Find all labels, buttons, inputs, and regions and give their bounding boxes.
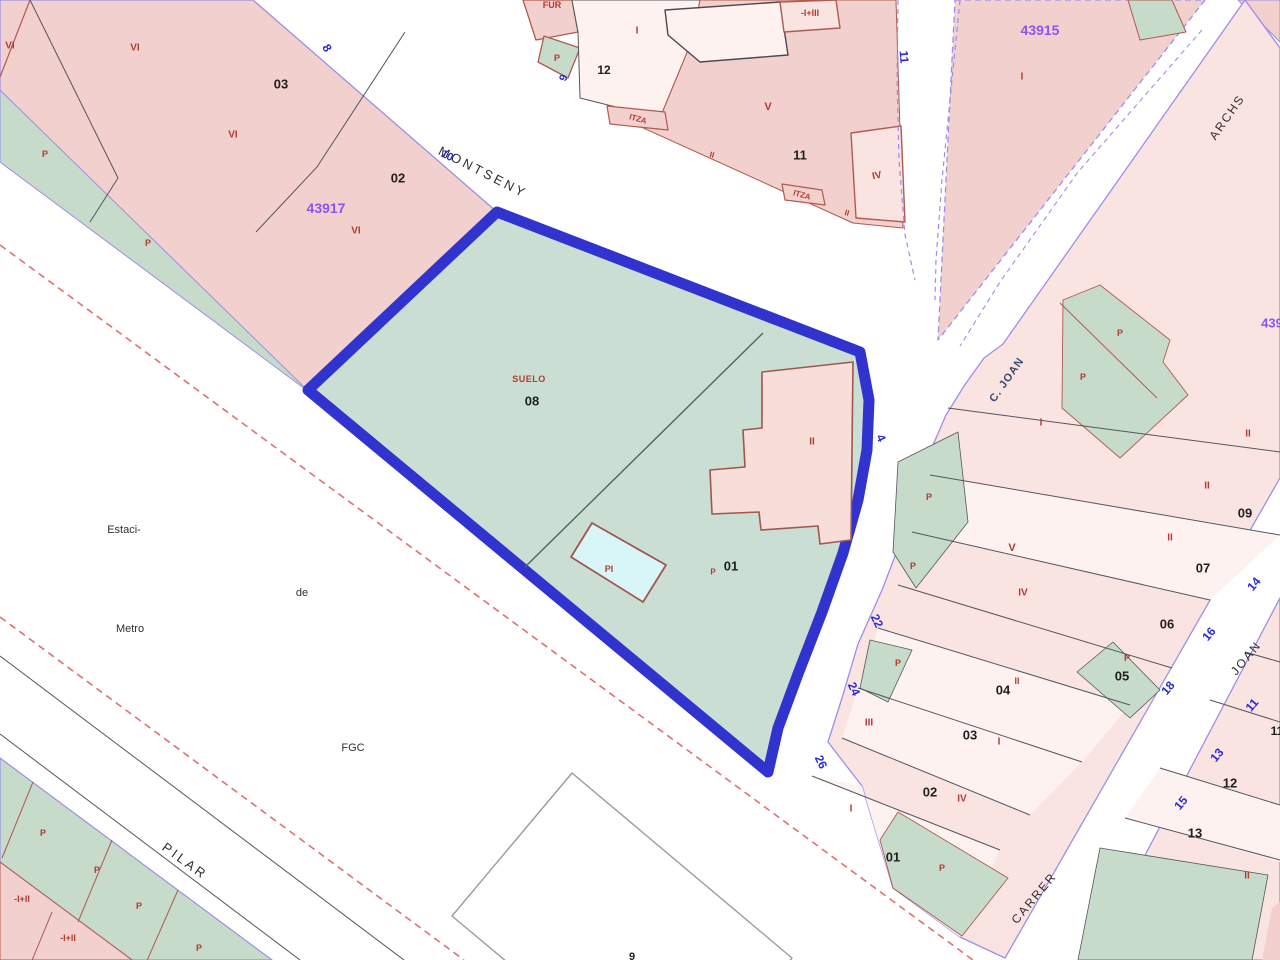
cadastral-map[interactable]: VIVI03VI0243917VIPP8MONTSENY1091211FURPI… [0, 0, 1280, 960]
label-parcel-03: 03 [274, 77, 288, 92]
label-vi-3: VI [351, 226, 361, 237]
label-i-43915: I [1021, 72, 1024, 83]
label-vi-1: VI [130, 43, 140, 54]
label-streetnum-14: 14 [1244, 574, 1264, 593]
label-parcel-05: 05 [1115, 669, 1129, 684]
label-iv-02: IV [957, 794, 967, 805]
label-i-bldg: I [636, 26, 639, 37]
label-pool-pi: PI [605, 564, 614, 574]
label-parcel-12: 12 [597, 63, 611, 77]
label-streetnum-11: 11 [896, 50, 911, 64]
label-i-ii-1: -I+II [14, 894, 30, 904]
label-p-7: P [1080, 372, 1086, 382]
label-fgc: FGC [341, 742, 364, 754]
label-parcel-02: 02 [391, 171, 405, 186]
label-parcel-06: 06 [1160, 617, 1174, 632]
label-v-rb: V [1008, 542, 1016, 554]
label-i-ii-2: -I+II [60, 933, 76, 943]
label-ii-fb: II [1244, 871, 1250, 882]
label-fur: FUR [543, 0, 562, 10]
label-parcel-02-rb: 02 [923, 785, 937, 800]
building-outline-plot[interactable] [452, 773, 792, 960]
label-ii-04: II [1014, 676, 1019, 686]
label-p-3: P [554, 53, 560, 63]
label-ii-rb-3: II [1167, 533, 1173, 544]
label-streetnum-26: 26 [812, 753, 830, 771]
label-streetnum-16: 16 [1199, 624, 1219, 643]
label-streetnum-4: 4 [873, 432, 889, 444]
label-estacio: Estaci- [107, 524, 141, 536]
label-i-rb: I [1040, 418, 1043, 429]
label-parcel-04: 04 [996, 683, 1011, 698]
label-vi-edge: VI [5, 41, 15, 52]
label-p-10: P [939, 863, 945, 873]
label-p-8: P [1117, 328, 1123, 338]
label-p-5: P [910, 561, 916, 571]
label-parcel-01-center: 01 [724, 559, 738, 574]
label-ii-rb-2: II [1204, 481, 1210, 492]
label-block-43917: 43917 [307, 200, 346, 216]
label-ii-building: II [809, 437, 815, 448]
label-i-rb-2: I [850, 804, 853, 815]
label-metro: Metro [116, 623, 144, 635]
label-p-13: P [136, 901, 142, 911]
label-p-14: P [196, 943, 202, 953]
label-parcel-09: 09 [1238, 506, 1252, 521]
label-i-03: I [998, 737, 1001, 748]
label-p-11: P [40, 828, 46, 838]
label-parcel-11-clipped: 11 [1271, 724, 1280, 738]
label-block-43915: 43915 [1021, 22, 1060, 38]
label-de: de [296, 587, 308, 599]
label-p-2: P [145, 238, 151, 248]
label-vi-2: VI [228, 130, 238, 141]
label-p-1: P [42, 149, 48, 159]
label-iii-rb: III [865, 718, 874, 729]
label-p-4: P [926, 492, 932, 502]
label-p-6: P [895, 658, 901, 668]
label-parcel-07: 07 [1196, 561, 1210, 576]
label-parcel-13-fb: 13 [1188, 826, 1202, 841]
label-street-pilar: PILAR [159, 839, 210, 882]
label-p-9: P [1124, 653, 1130, 663]
map-viewport: VIVI03VI0243917VIPP8MONTSENY1091211FURPI… [0, 0, 1280, 960]
label-parcel-03-rb: 03 [963, 728, 977, 743]
label-i-iii: -I+III [801, 8, 819, 18]
label-streetnum-8: 8 [319, 42, 335, 55]
label-bottom-clipped: 9 [629, 951, 635, 960]
label-parcel-01-rb: 01 [886, 850, 900, 865]
label-iv-rb-1: IV [1018, 588, 1028, 599]
label-ii-rb-1: II [1245, 429, 1251, 440]
label-block-439-clipped: 439 [1261, 316, 1280, 331]
label-p-12: P [94, 865, 100, 875]
label-parcel-11: 11 [793, 148, 807, 163]
label-parcel-12-fb: 12 [1223, 776, 1237, 791]
label-parcel-08: 08 [525, 394, 539, 409]
label-v-top: V [764, 101, 772, 113]
label-suelo: SUELO [512, 374, 546, 384]
label-p-pool: P [710, 568, 716, 577]
